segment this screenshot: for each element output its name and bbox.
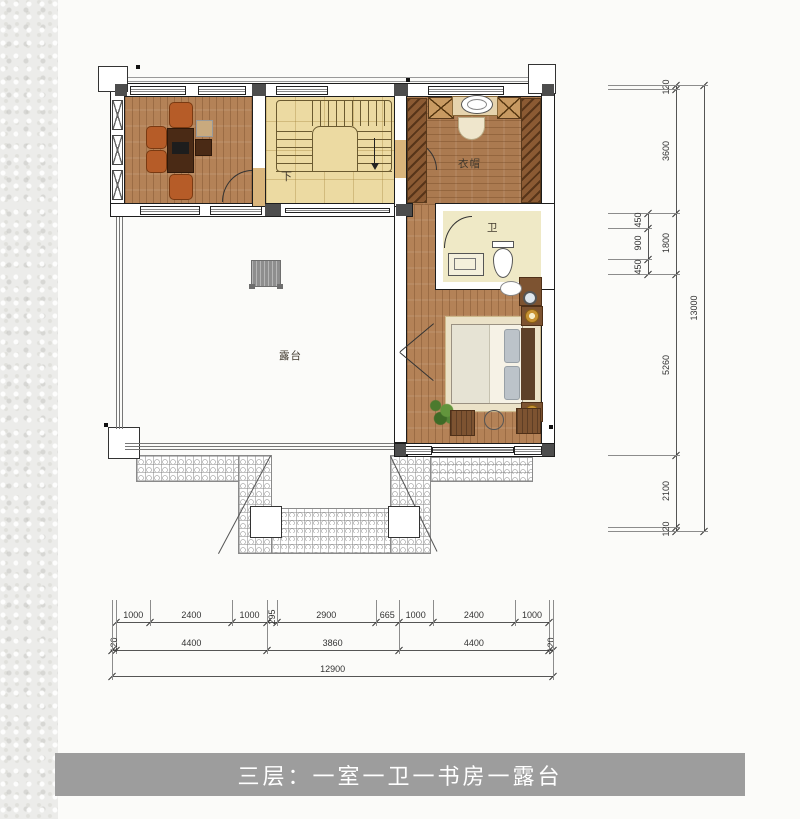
dim-line xyxy=(704,85,705,531)
dim-label: 12900 xyxy=(303,664,363,674)
dim-label: 120 xyxy=(661,499,671,559)
dim-label: 120 xyxy=(546,615,556,675)
dim-line xyxy=(112,676,553,677)
dim-label: 2400 xyxy=(444,610,504,620)
dim-line xyxy=(648,213,649,275)
dim-label: 1000 xyxy=(386,610,446,620)
dim-extension-line xyxy=(608,85,708,86)
dim-label: 2900 xyxy=(296,610,356,620)
dim-extension-line xyxy=(399,600,400,654)
dim-label: 3860 xyxy=(303,638,363,648)
dim-label: 2400 xyxy=(161,610,221,620)
dim-label: 4400 xyxy=(161,638,221,648)
caption-text: 三层：一室一卫一书房一露台 xyxy=(237,759,562,791)
dim-label: 120 xyxy=(109,615,119,675)
dim-label: 3600 xyxy=(661,121,671,181)
dim-extension-line xyxy=(112,600,113,680)
dim-line xyxy=(116,622,549,623)
dim-label: 1800 xyxy=(661,213,671,273)
dim-label: 5260 xyxy=(661,335,671,395)
dim-label: 120 xyxy=(661,57,671,117)
dim-extension-line xyxy=(608,531,708,532)
dim-extension-line xyxy=(608,213,652,214)
dim-label: 4400 xyxy=(444,638,504,648)
dim-extension-line xyxy=(608,455,680,456)
dim-line xyxy=(676,85,677,531)
dim-extension-line xyxy=(553,600,554,680)
dimension-annotations: 1000240010002952900665100024001000120440… xyxy=(0,0,800,819)
dim-label: 295 xyxy=(267,587,277,647)
dim-label: 13000 xyxy=(689,278,699,338)
caption-bar: 三层：一室一卫一书房一露台 xyxy=(55,753,745,796)
dim-extension-line xyxy=(608,228,652,229)
dim-extension-line xyxy=(608,274,652,275)
dim-extension-line xyxy=(608,259,652,260)
floor-plan: 下 衣帽 卫 露台 10002400100029529006651 xyxy=(0,0,800,819)
dim-label: 450 xyxy=(633,237,643,297)
dim-line xyxy=(112,650,553,651)
dim-extension-line xyxy=(267,600,268,654)
